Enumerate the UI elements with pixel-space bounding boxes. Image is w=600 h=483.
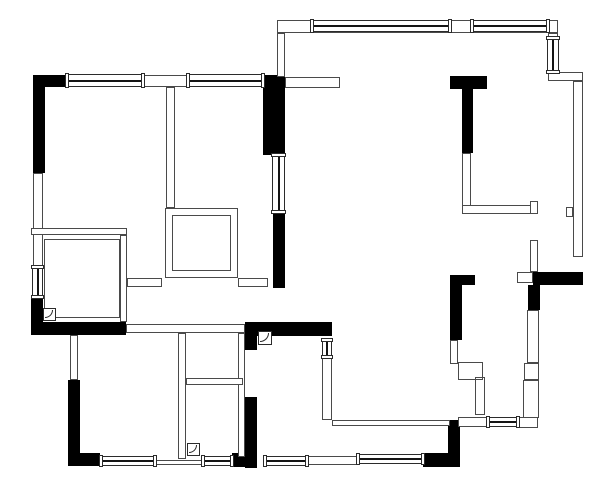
partition-wall [31,228,127,235]
door-swing-arc [189,445,197,453]
structural-wall [462,89,473,153]
window-frame-post [310,19,314,33]
window-horizontal [66,74,144,87]
inner-outline [44,239,120,318]
structural-wall [68,453,100,466]
window-glass-line [266,460,306,462]
window-frame-post [201,455,205,467]
structural-wall [263,75,285,155]
door-swing-arc [260,333,269,342]
partition-wall [458,417,488,427]
partition-wall [308,456,358,465]
window-vertical [547,37,559,73]
window-frame-post [516,416,520,428]
window-frame-post [421,453,425,465]
window-horizontal [311,20,451,32]
window-horizontal [471,20,549,32]
structural-wall [33,75,45,173]
partition-wall [524,363,539,380]
structural-wall [462,275,475,285]
window-frame-post [356,453,360,465]
partition-wall [462,153,471,207]
window-frame-post [141,73,145,88]
door-swing [43,308,56,321]
window-frame-post [31,295,44,299]
window-frame-post [546,70,560,74]
partition-wall [523,380,539,418]
window-glass-line [552,39,554,71]
window-glass-line [68,80,142,82]
structural-wall [245,322,257,350]
partition-wall [530,201,538,214]
window-frame-post [261,73,265,88]
structural-wall [533,272,583,285]
window-frame-post [448,19,452,33]
structural-wall [448,420,460,467]
partition-wall [178,333,186,459]
window-glass-line [313,25,449,27]
window-frame-post [321,355,333,359]
structural-wall [528,285,540,310]
partition-wall [322,357,332,420]
partition-wall [166,87,175,208]
partition-wall [186,378,243,385]
window-horizontal [187,74,264,87]
partition-wall [518,417,538,428]
partition-wall [527,310,539,363]
partition-wall [517,272,533,283]
partition-wall [566,207,573,217]
window-glass-line [489,421,517,423]
window-frame-post [271,210,286,214]
window-frame-post [31,265,44,269]
partition-wall [238,278,268,287]
window-glass-line [204,460,231,462]
window-frame-post [230,455,234,467]
window-frame-post [65,73,69,88]
door-swing-arc [45,310,53,318]
partition-wall [143,75,188,87]
window-vertical [32,266,43,298]
floor-plan [0,0,600,483]
partition-wall [285,77,340,88]
window-glass-line [326,341,328,356]
partition-wall [530,240,538,272]
window-glass-line [37,268,39,296]
window-frame-post [321,338,333,342]
window-vertical [272,154,285,213]
structural-wall [273,212,285,288]
window-frame-post [186,73,190,88]
window-glass-line [102,460,154,462]
partition-wall [462,205,538,214]
partition-wall [238,333,245,457]
window-glass-line [473,25,547,27]
inner-outline [475,377,485,415]
partition-wall [573,81,583,257]
door-swing [187,443,200,456]
partition-wall [120,235,127,322]
window-frame-post [486,416,490,428]
partition-wall [332,420,450,426]
window-glass-line [189,80,262,82]
window-frame-post [546,19,550,33]
partition-wall [33,173,43,268]
inner-outline [172,215,231,271]
window-horizontal [264,456,308,466]
door-swing [258,331,272,345]
partition-wall [127,278,162,287]
window-horizontal [487,417,519,427]
structural-wall [31,322,126,335]
partition-wall [126,324,245,333]
window-frame-post [305,455,309,467]
window-horizontal [100,456,156,466]
window-frame-post [546,36,560,40]
window-horizontal [357,454,424,464]
partition-wall [277,33,285,77]
window-vertical [322,339,332,358]
window-frame-post [271,153,286,157]
window-frame-post [99,455,103,467]
window-frame-post [153,455,157,467]
window-frame-post [263,455,267,467]
structural-wall [450,76,487,89]
window-frame-post [470,19,474,33]
partition-wall [155,460,202,465]
window-glass-line [278,156,280,211]
window-horizontal [202,456,233,466]
partition-wall [450,340,458,364]
structural-wall [450,275,462,340]
window-glass-line [359,458,422,460]
partition-wall [70,335,78,380]
